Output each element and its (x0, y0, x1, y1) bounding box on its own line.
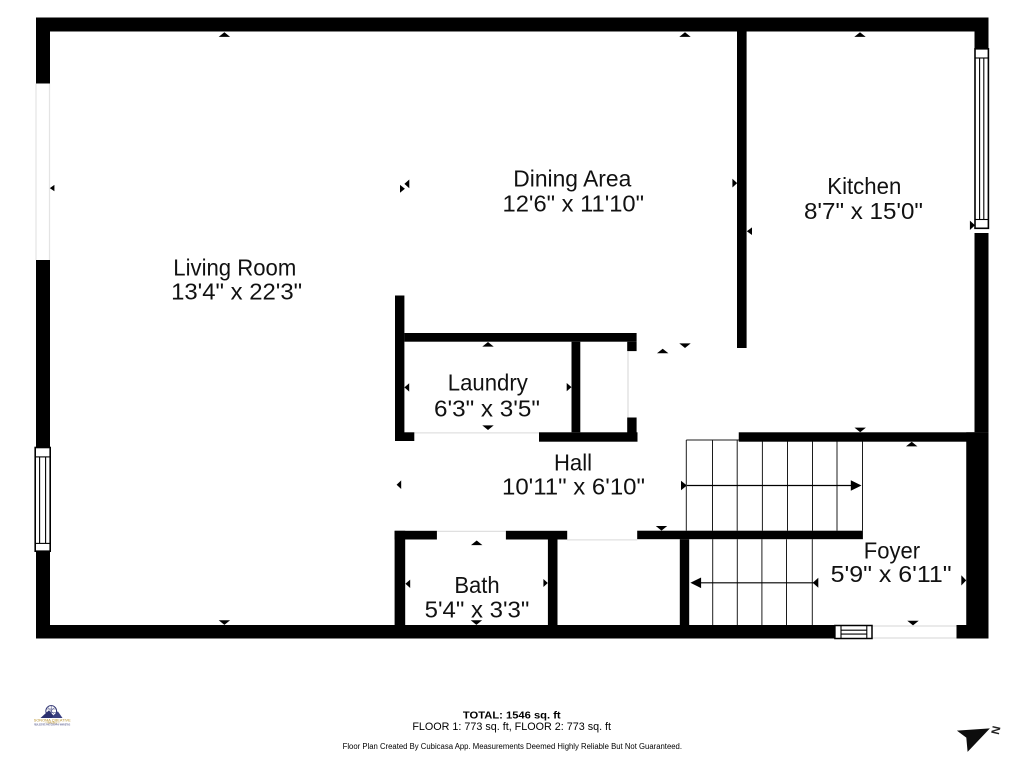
svg-text:Bath: Bath (454, 572, 499, 598)
svg-text:Foyer: Foyer (864, 538, 920, 564)
svg-text:FLOOR 1: 773 sq. ft, FLOOR 2:: FLOOR 1: 773 sq. ft, FLOOR 2: 773 sq. ft (412, 721, 611, 733)
svg-text:Floor Plan Created By Cubicasa: Floor Plan Created By Cubicasa App. Meas… (343, 742, 682, 751)
svg-text:8'7" x 15'0": 8'7" x 15'0" (804, 198, 923, 224)
svg-text:13'4" x 22'3": 13'4" x 22'3" (171, 278, 302, 304)
svg-text:REAL ESTATE PHOTOGRAPHY MARKET: REAL ESTATE PHOTOGRAPHY MARKETING (34, 724, 70, 727)
svg-text:Dining Area: Dining Area (513, 166, 632, 192)
svg-text:12'6" x 11'10": 12'6" x 11'10" (503, 191, 645, 217)
svg-text:Living Room: Living Room (173, 254, 296, 280)
svg-text:Hall: Hall (554, 450, 592, 476)
svg-text:Kitchen: Kitchen (827, 173, 901, 199)
svg-text:10'11" x 6'10": 10'11" x 6'10" (502, 474, 645, 500)
svg-text:5'9" x 6'11": 5'9" x 6'11" (831, 561, 952, 587)
svg-text:Laundry: Laundry (448, 370, 528, 396)
svg-text:6'3" x 3'5": 6'3" x 3'5" (434, 395, 540, 421)
svg-text:5'4" x 3'3": 5'4" x 3'3" (425, 596, 530, 622)
svg-text:TOTAL: 1546 sq. ft: TOTAL: 1546 sq. ft (463, 711, 561, 722)
